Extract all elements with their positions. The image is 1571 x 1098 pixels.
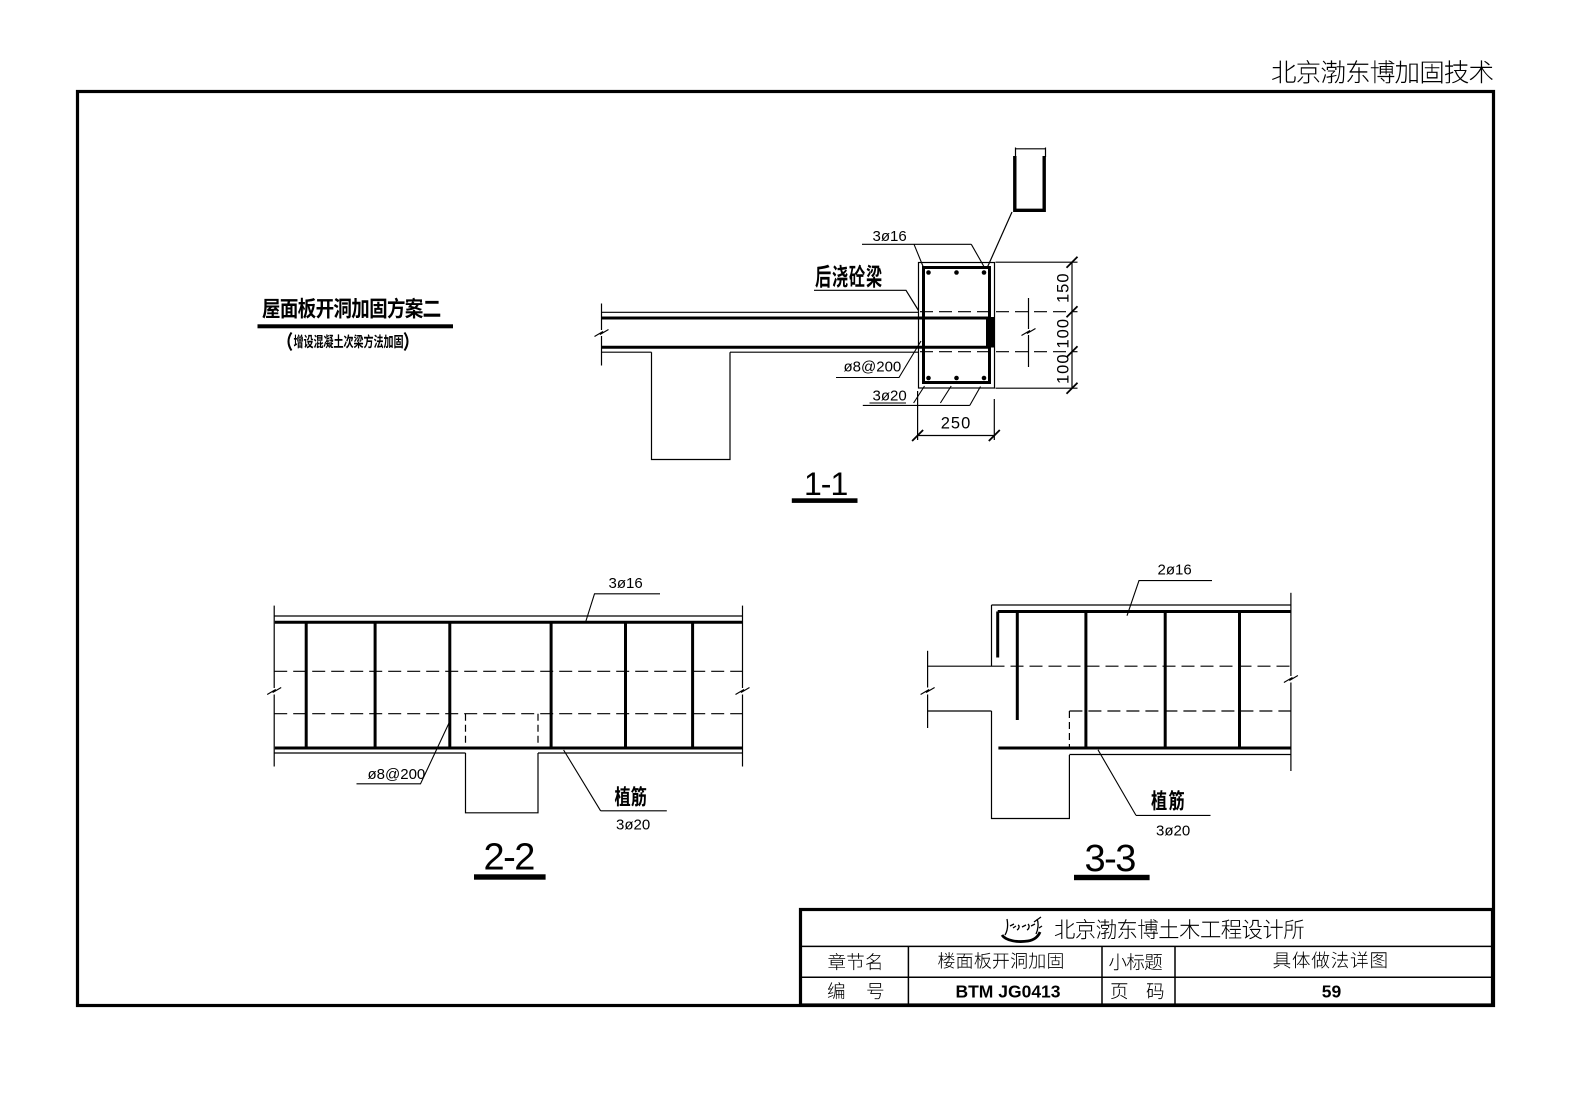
svg-text:3ø20: 3ø20 [1156, 823, 1190, 840]
svg-text:3ø16: 3ø16 [873, 228, 907, 245]
svg-text:3ø20: 3ø20 [616, 817, 650, 834]
svg-text:3-3: 3-3 [1085, 838, 1136, 880]
svg-text:3ø16: 3ø16 [609, 575, 643, 592]
svg-text:ø8@200: ø8@200 [844, 359, 902, 376]
svg-text:3ø20: 3ø20 [873, 388, 907, 405]
svg-text:100: 100 [1055, 353, 1073, 384]
svg-text:2ø16: 2ø16 [1158, 562, 1192, 579]
svg-text:150: 150 [1055, 272, 1073, 303]
svg-text:BTM JG0413: BTM JG0413 [955, 982, 1060, 1002]
svg-text:59: 59 [1322, 982, 1342, 1002]
svg-text:1-1: 1-1 [804, 466, 847, 502]
svg-text:100: 100 [1055, 318, 1073, 349]
svg-text:250: 250 [941, 415, 972, 433]
svg-text:2-2: 2-2 [484, 837, 535, 879]
svg-text:ø8@200: ø8@200 [368, 766, 426, 783]
